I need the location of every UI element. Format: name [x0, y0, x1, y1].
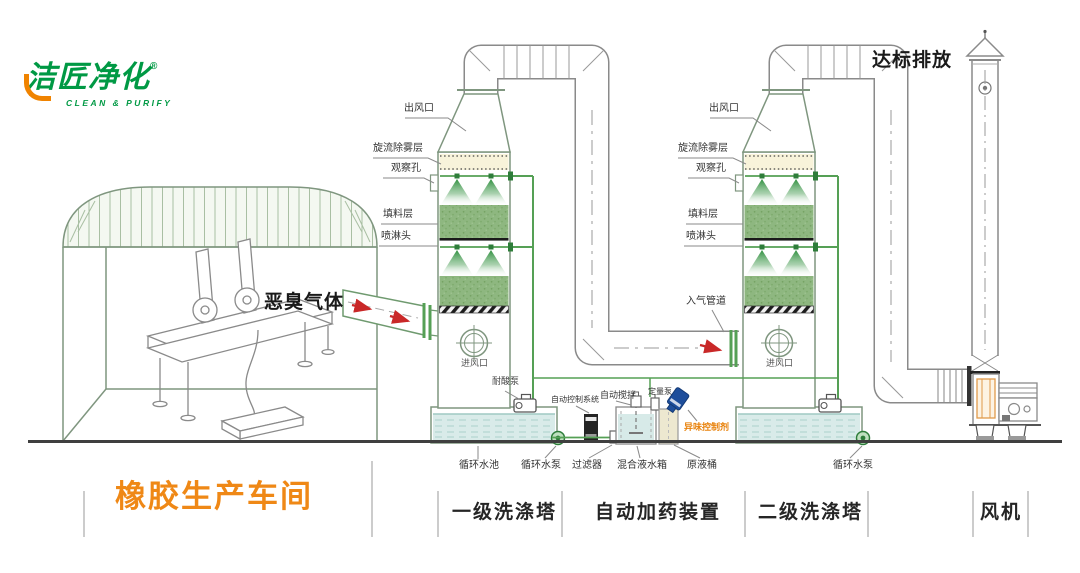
- label-spray-head-t2: 喷淋头: [686, 232, 716, 243]
- fan-unit: [969, 374, 1041, 441]
- metering-pump-device: [651, 398, 659, 410]
- label-odor-agent: 异味控制剂: [684, 423, 729, 432]
- production-machine: [148, 239, 334, 439]
- process-diagram: 洁匠净化® CLEAN & PURIFY 恶臭气体 达标排放 出风口 旋流除雾层…: [0, 0, 1080, 573]
- label-filter: 过滤器: [572, 461, 602, 472]
- label-air-outlet-t1: 出风口: [404, 104, 434, 115]
- label-gas-inlet-pipe: 入气管道: [686, 297, 726, 308]
- label-circ-pump-2: 循环水泵: [833, 461, 873, 472]
- label-raw-barrel: 原液桶: [687, 461, 717, 472]
- section-fan: 风机: [980, 503, 1022, 523]
- label-viewport-t1: 观察孔: [391, 164, 421, 175]
- label-circ-pump-1: 循环水泵: [521, 461, 561, 472]
- section-tower2: 二级洗涤塔: [758, 503, 863, 523]
- label-metering-pump: 定量泵: [648, 388, 672, 396]
- label-packing-t1: 填料层: [383, 210, 413, 221]
- label-mix-tank: 混合液水箱: [617, 461, 667, 472]
- label-viewport-t2: 观察孔: [696, 164, 726, 175]
- label-auto-stirrer: 自动搅拌: [600, 391, 636, 400]
- section-tower1: 一级洗涤塔: [452, 503, 557, 523]
- label-demister-t2: 旋流除雾层: [678, 144, 728, 155]
- label-air-outlet-t2: 出风口: [709, 104, 739, 115]
- odor-gas-label: 恶臭气体: [264, 293, 344, 313]
- label-spray-head-t1: 喷淋头: [381, 232, 411, 243]
- section-workshop: 橡胶生产车间: [115, 481, 313, 514]
- section-dosing: 自动加药装置: [595, 503, 721, 523]
- label-air-inlet-t1: 进风口: [461, 359, 488, 368]
- logo-swoosh-icon: [24, 74, 51, 101]
- exhaust-stack: [967, 30, 1003, 374]
- discharge-label: 达标排放: [872, 51, 952, 71]
- label-circ-pool: 循环水池: [459, 461, 499, 472]
- label-control-system: 自动控制系统: [551, 396, 599, 404]
- label-packing-t2: 填料层: [688, 210, 718, 221]
- workshop-building: [63, 187, 377, 441]
- brand-tagline: CLEAN & PURIFY: [66, 98, 216, 108]
- label-air-inlet-t2: 进风口: [766, 359, 793, 368]
- registered-mark: ®: [150, 61, 157, 72]
- odor-gas-duct: [343, 290, 438, 340]
- brand-logo: 洁匠净化® CLEAN & PURIFY: [26, 52, 216, 108]
- label-demister-t1: 旋流除雾层: [373, 144, 423, 155]
- label-acid-pump-t1: 耐酸泵: [492, 377, 519, 386]
